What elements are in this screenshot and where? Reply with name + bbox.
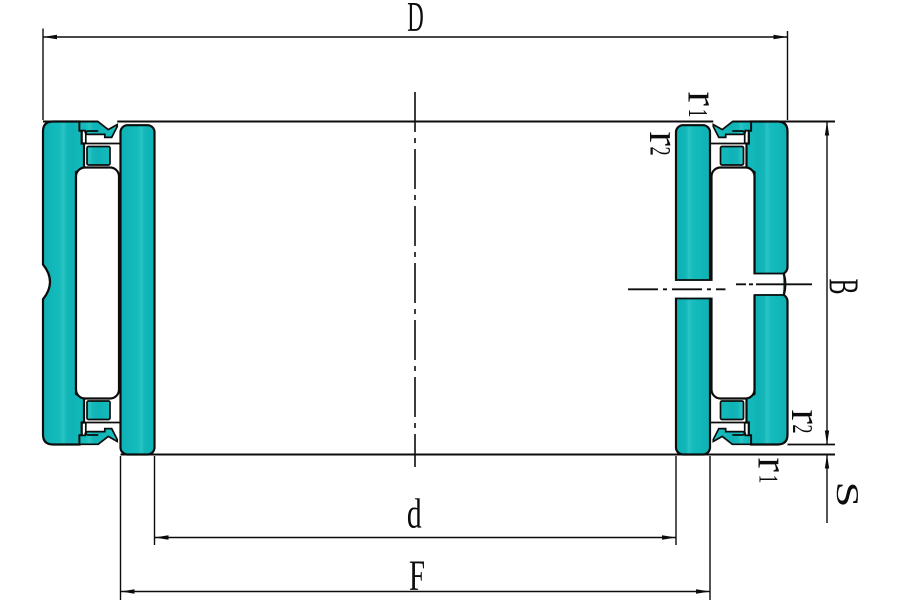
svg-text:r: r [782,410,829,424]
svg-text:2: 2 [786,425,818,434]
svg-text:2: 2 [644,147,677,156]
svg-text:S: S [830,482,866,508]
svg-text:D: D [407,0,424,41]
svg-text:F: F [409,553,425,600]
svg-text:d: d [407,492,422,538]
svg-text:r: r [679,92,726,106]
svg-text:r: r [749,458,796,472]
svg-text:1: 1 [683,109,713,118]
svg-text:r: r [640,132,687,146]
svg-text:1: 1 [753,475,783,484]
svg-text:B: B [820,279,866,295]
